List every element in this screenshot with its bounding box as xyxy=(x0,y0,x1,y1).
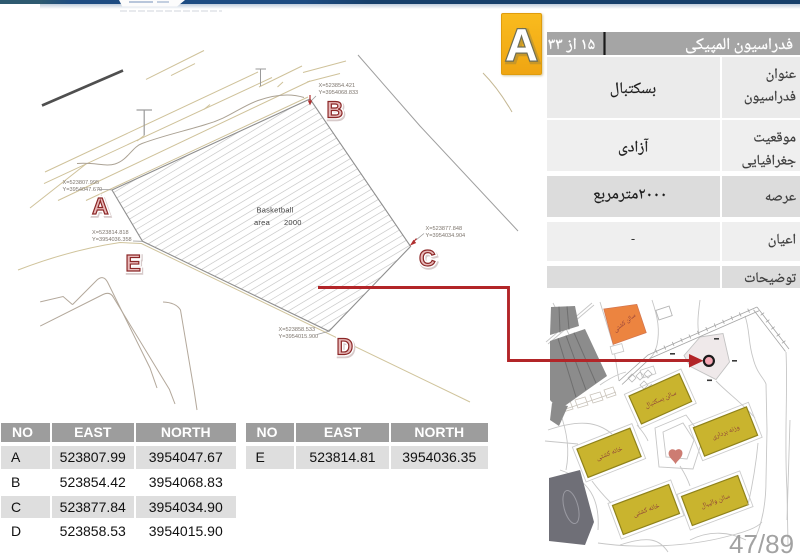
svg-text:B: B xyxy=(327,97,344,123)
svg-text:C: C xyxy=(419,245,436,271)
svg-text:X=523854.421: X=523854.421 xyxy=(319,83,356,89)
svg-text:2000: 2000 xyxy=(284,218,302,227)
svg-text:X=523877.848: X=523877.848 xyxy=(426,226,463,232)
svg-text:C: C xyxy=(420,247,437,273)
svg-text:D: D xyxy=(338,335,355,361)
svg-text:D: D xyxy=(337,334,354,360)
svg-text:47/89: 47/89 xyxy=(729,529,794,557)
svg-text:area: area xyxy=(254,218,271,227)
svg-text:Y=3954068.833: Y=3954068.833 xyxy=(319,90,359,96)
svg-text:E: E xyxy=(127,252,142,278)
svg-text:E: E xyxy=(126,250,141,276)
svg-text:A: A xyxy=(92,193,109,219)
svg-text:D: D xyxy=(337,334,354,360)
svg-text:A: A xyxy=(93,195,110,221)
svg-text:Y=3954015.900: Y=3954015.900 xyxy=(279,334,319,340)
svg-text:Y=3954034.904: Y=3954034.904 xyxy=(426,233,466,239)
svg-text:B: B xyxy=(328,98,345,124)
svg-text:A: A xyxy=(92,193,109,219)
svg-text:B: B xyxy=(327,97,344,123)
svg-text:Y=3954036.358: Y=3954036.358 xyxy=(92,237,132,243)
svg-text:Basketball: Basketball xyxy=(257,206,294,215)
svg-text:E: E xyxy=(126,250,141,276)
svg-text:Y=3954047.670: Y=3954047.670 xyxy=(63,187,103,193)
svg-text:C: C xyxy=(419,245,436,271)
svg-text:X=523814.818: X=523814.818 xyxy=(92,230,129,236)
svg-text:X=523807.995: X=523807.995 xyxy=(63,180,100,186)
svg-text:X=523858.533: X=523858.533 xyxy=(279,327,316,333)
